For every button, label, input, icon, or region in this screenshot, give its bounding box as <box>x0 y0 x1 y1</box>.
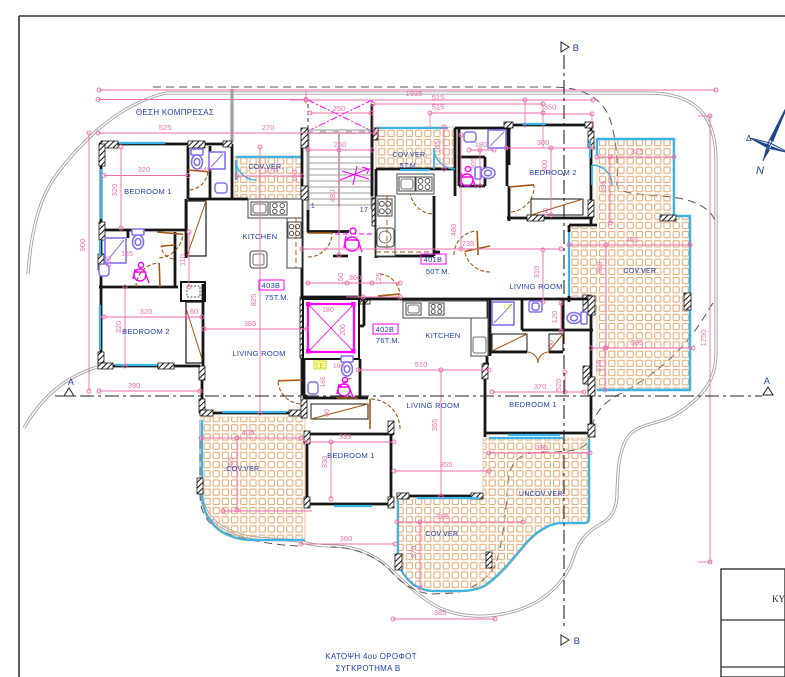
svg-text:UNCOV.VER.: UNCOV.VER. <box>519 491 565 498</box>
svg-text:180: 180 <box>475 140 488 149</box>
svg-text:1750: 1750 <box>699 330 708 347</box>
svg-text:402Β: 402Β <box>376 325 395 334</box>
svg-text:390: 390 <box>128 381 141 390</box>
svg-text:COV.VER.: COV.VER. <box>425 531 460 538</box>
svg-text:BEDROOM 1: BEDROOM 1 <box>509 400 557 409</box>
svg-text:LIVING ROOM: LIVING ROOM <box>509 282 562 291</box>
svg-text:COV.VER.: COV.VER. <box>248 164 283 171</box>
svg-text:LIVING ROOM: LIVING ROOM <box>406 401 459 410</box>
svg-text:150: 150 <box>290 170 299 183</box>
svg-text:190: 190 <box>333 363 344 370</box>
svg-text:480: 480 <box>328 190 337 203</box>
svg-text:315: 315 <box>594 360 603 373</box>
svg-text:405: 405 <box>242 428 255 437</box>
svg-text:465: 465 <box>626 235 639 244</box>
svg-text:COV.VER.: COV.VER. <box>623 268 658 275</box>
svg-text:520: 520 <box>554 379 563 392</box>
svg-text:190: 190 <box>106 256 113 268</box>
svg-text:395: 395 <box>536 443 549 452</box>
svg-text:KITCHEN: KITCHEN <box>425 331 460 340</box>
svg-text:370: 370 <box>534 382 547 391</box>
svg-text:LIVING ROOM: LIVING ROOM <box>232 349 285 358</box>
svg-text:515: 515 <box>432 93 445 102</box>
svg-text:165: 165 <box>433 141 442 154</box>
svg-text:335: 335 <box>339 432 352 441</box>
svg-text:75Τ.Μ.: 75Τ.Μ. <box>265 293 289 302</box>
svg-text:900: 900 <box>78 239 87 252</box>
svg-text:360: 360 <box>340 534 353 543</box>
svg-text:1: 1 <box>311 203 315 210</box>
svg-text:360: 360 <box>349 273 362 282</box>
svg-text:205: 205 <box>469 158 478 171</box>
svg-text:ΣΥΓΚΡΟΤΗΜΑ Β: ΣΥΓΚΡΟΤΗΜΑ Β <box>336 664 401 673</box>
svg-text:310: 310 <box>532 266 541 279</box>
svg-text:145: 145 <box>199 167 211 174</box>
svg-text:COV.VER.: COV.VER. <box>392 152 427 159</box>
svg-text:150: 150 <box>336 273 345 286</box>
svg-text:320: 320 <box>138 165 151 174</box>
svg-text:60: 60 <box>190 307 198 316</box>
svg-text:350: 350 <box>544 103 557 112</box>
svg-text:76Τ.Μ.: 76Τ.Μ. <box>376 336 400 345</box>
svg-text:525: 525 <box>159 123 172 132</box>
svg-text:380: 380 <box>595 262 604 275</box>
svg-text:17: 17 <box>360 207 368 214</box>
svg-text:110: 110 <box>178 254 187 266</box>
svg-text:250: 250 <box>334 140 347 149</box>
svg-text:KITCHEN: KITCHEN <box>242 232 277 241</box>
svg-text:N: N <box>756 165 764 177</box>
svg-text:320: 320 <box>140 307 153 316</box>
svg-text:480: 480 <box>449 224 458 237</box>
svg-text:401Β: 401Β <box>424 255 443 264</box>
svg-text:BEDROOM 2: BEDROOM 2 <box>529 168 577 177</box>
svg-text:125: 125 <box>374 273 383 286</box>
svg-text:COV.VER.: COV.VER. <box>226 466 261 473</box>
svg-text:Δ: Δ <box>746 133 752 143</box>
svg-text:BEDROOM 1: BEDROOM 1 <box>327 451 375 460</box>
svg-text:BEDROOM 2: BEDROOM 2 <box>122 327 170 336</box>
svg-text:385: 385 <box>631 338 644 347</box>
svg-text:Τ.Ε: Τ.Ε <box>315 364 324 370</box>
svg-text:180: 180 <box>322 307 334 314</box>
svg-text:370: 370 <box>409 546 418 559</box>
svg-text:B: B <box>574 636 581 647</box>
svg-text:270: 270 <box>262 123 275 132</box>
svg-text:1935: 1935 <box>406 89 423 98</box>
svg-text:BEDROOM 1: BEDROOM 1 <box>124 187 172 196</box>
svg-text:385: 385 <box>244 319 257 328</box>
svg-text:355: 355 <box>430 419 439 432</box>
svg-text:B: B <box>573 43 580 54</box>
svg-text:165: 165 <box>320 376 327 387</box>
svg-text:515: 515 <box>432 103 445 112</box>
svg-text:185: 185 <box>121 251 133 258</box>
svg-text:355: 355 <box>440 460 453 469</box>
svg-text:325: 325 <box>631 147 644 156</box>
svg-text:385: 385 <box>437 512 450 521</box>
svg-text:5Τ.Μ.: 5Τ.Μ. <box>400 163 419 170</box>
svg-text:825: 825 <box>249 294 258 307</box>
svg-text:295: 295 <box>599 181 608 194</box>
svg-text:Τ.Ε: Τ.Ε <box>503 305 512 311</box>
svg-text:120: 120 <box>550 311 559 324</box>
svg-text:200: 200 <box>340 324 347 336</box>
svg-text:735: 735 <box>462 239 475 248</box>
svg-text:250: 250 <box>333 104 346 113</box>
svg-text:60: 60 <box>543 208 550 216</box>
svg-text:320: 320 <box>110 184 119 197</box>
svg-text:ΚΥΡ: ΚΥΡ <box>772 594 785 604</box>
svg-text:510: 510 <box>415 360 428 369</box>
svg-text:ΘΕΣΗ ΚΟΜΠΡΕΣΑΣ: ΘΕΣΗ ΚΟΜΠΡΕΣΑΣ <box>136 108 214 117</box>
svg-text:50Τ.Μ.: 50Τ.Μ. <box>426 267 450 276</box>
svg-text:60: 60 <box>324 409 331 417</box>
svg-text:A: A <box>764 376 770 386</box>
svg-text:A: A <box>68 377 74 387</box>
svg-text:385: 385 <box>434 608 447 617</box>
svg-text:403Β: 403Β <box>262 281 281 290</box>
svg-text:60: 60 <box>546 340 555 348</box>
svg-text:ΚΑΤΟΨΗ 4ου ΟΡΟΦΟΤ: ΚΑΤΟΨΗ 4ου ΟΡΟΦΟΤ <box>325 652 417 661</box>
